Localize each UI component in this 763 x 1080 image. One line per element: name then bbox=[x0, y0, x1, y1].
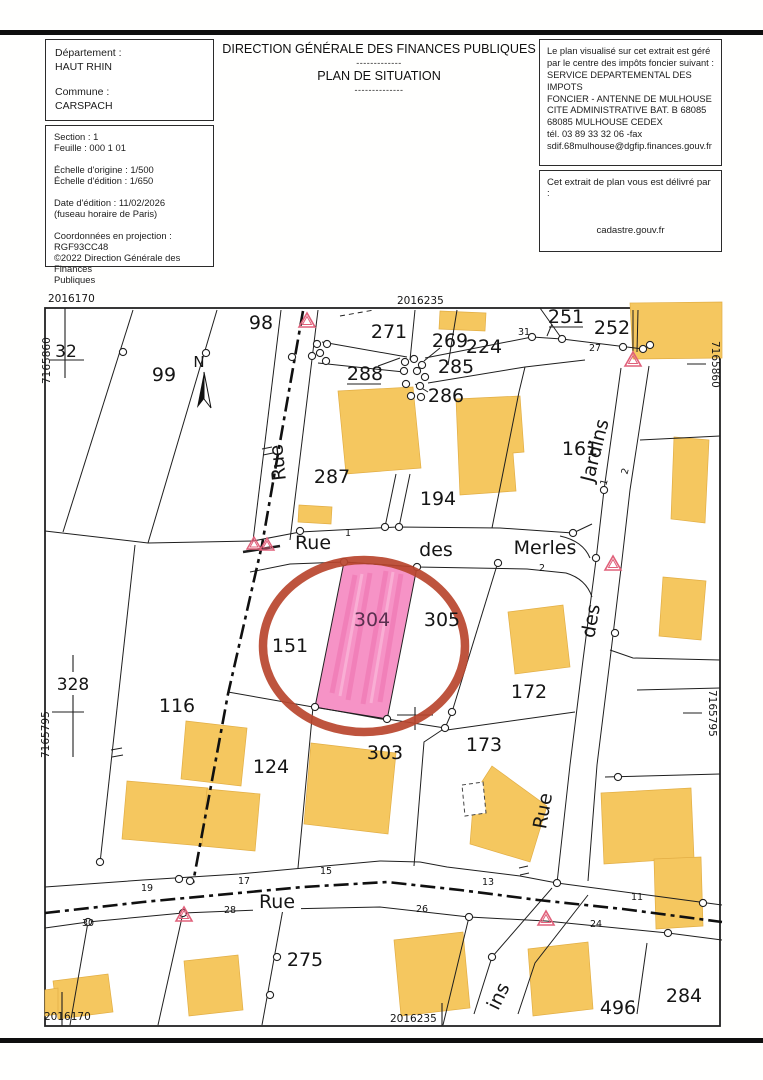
parcel-label-269: 269 bbox=[432, 330, 468, 352]
building bbox=[184, 955, 243, 1016]
parcel-label-285: 285 bbox=[438, 356, 474, 378]
parcel-label-305: 305 bbox=[424, 609, 460, 631]
house-number: 11 bbox=[631, 892, 643, 903]
coord-bottom-center: 2016235 bbox=[390, 1013, 437, 1025]
house-number: 15 bbox=[320, 866, 332, 877]
house-number: 30 bbox=[82, 918, 94, 929]
coord-left-top: 7165860 bbox=[41, 337, 53, 384]
parcel-label-151: 151 bbox=[272, 635, 308, 657]
parcel-label-288: 288 bbox=[347, 363, 383, 385]
house-number: 13 bbox=[482, 877, 494, 888]
parcel-label-224: 224 bbox=[466, 336, 502, 358]
parcel-label-275: 275 bbox=[287, 949, 323, 971]
parcel-label-124: 124 bbox=[253, 756, 289, 778]
parcel-label-172: 172 bbox=[511, 681, 547, 703]
street-label-merles: Merles bbox=[514, 537, 577, 559]
building bbox=[528, 942, 593, 1016]
building bbox=[654, 857, 703, 929]
house-number: 2 bbox=[539, 563, 545, 574]
building bbox=[659, 577, 706, 640]
building bbox=[508, 605, 570, 674]
parcel-label-173: 173 bbox=[466, 734, 502, 756]
coord-bottom-left: 2016170 bbox=[44, 1011, 91, 1023]
parcel-label-496: 496 bbox=[600, 997, 636, 1019]
cadastral-extract-page: Département : HAUT RHIN Commune : CARSPA… bbox=[0, 0, 763, 1080]
parcel-label-116: 116 bbox=[159, 695, 195, 717]
coord-right-top: 7165860 bbox=[709, 341, 721, 388]
parcel-label-252: 252 bbox=[594, 317, 630, 339]
coord-top-left: 2016170 bbox=[48, 293, 95, 305]
house-number: 31 bbox=[518, 327, 530, 338]
parcel-label-286: 286 bbox=[428, 385, 464, 407]
parcel-label-328: 328 bbox=[57, 675, 89, 695]
building bbox=[671, 437, 709, 523]
parcel-label-304: 304 bbox=[354, 609, 390, 631]
parcel-label-284: 284 bbox=[666, 985, 702, 1007]
house-number: 17 bbox=[238, 876, 250, 887]
house-number: 1 bbox=[345, 528, 351, 539]
building bbox=[122, 781, 208, 846]
dashed-building-outline bbox=[462, 782, 486, 816]
street-label-rue-bottom: Rue bbox=[259, 891, 295, 913]
parcel-label-98: 98 bbox=[249, 312, 273, 334]
situation-map: N 2016170 2016235 2016170 2016235 716586… bbox=[0, 0, 763, 1080]
building bbox=[338, 387, 421, 474]
house-number: 26 bbox=[416, 904, 428, 915]
north-label: N bbox=[193, 353, 204, 371]
coord-left-bottom: 7165795 bbox=[40, 711, 52, 758]
parcel-label-251: 251 bbox=[548, 306, 584, 328]
house-number: 19 bbox=[141, 883, 153, 894]
building bbox=[456, 396, 524, 495]
house-number: 28 bbox=[224, 905, 236, 916]
coord-top-center: 2016235 bbox=[397, 295, 444, 307]
parcel-label-32: 32 bbox=[55, 342, 77, 362]
building bbox=[202, 789, 260, 851]
building bbox=[439, 311, 486, 331]
street-label-des-merles: des bbox=[419, 539, 453, 561]
parcel-label-99: 99 bbox=[152, 364, 176, 386]
parcel-label-303: 303 bbox=[367, 742, 403, 764]
house-number: 27 bbox=[589, 343, 601, 354]
house-number: 24 bbox=[590, 919, 602, 930]
street-label-rue-merles: Rue bbox=[295, 532, 331, 554]
coord-right-bottom: 7165795 bbox=[706, 690, 718, 737]
building bbox=[298, 505, 332, 524]
parcel-label-287: 287 bbox=[314, 466, 350, 488]
street-label-rue-upper: Rue bbox=[265, 444, 291, 482]
parcel-label-271: 271 bbox=[371, 321, 407, 343]
building bbox=[601, 788, 694, 864]
building bbox=[394, 932, 470, 1016]
parcel-label-194: 194 bbox=[420, 488, 456, 510]
